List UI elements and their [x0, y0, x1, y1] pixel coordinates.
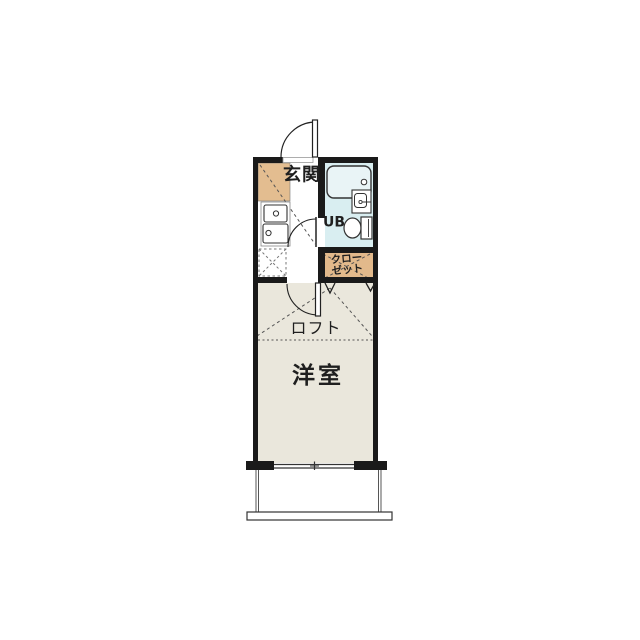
toilet-bowl-icon: [344, 218, 361, 238]
wall-bottom-cap-right: [354, 461, 387, 470]
wall-right: [373, 157, 378, 470]
vanity-faucet-dot: [359, 200, 362, 203]
entrance-label: 玄関: [283, 167, 321, 186]
washer-space: [259, 249, 286, 276]
sink-drain-icon: [266, 230, 271, 235]
wall-room-top-right: [318, 277, 378, 283]
bath-door-icon: [288, 217, 316, 247]
wall-top-right: [318, 157, 378, 163]
wall-room-top-left: [253, 277, 287, 283]
wall-left: [253, 157, 258, 470]
entrance-threshold: [283, 158, 313, 163]
balcony: [247, 470, 392, 520]
bath-door-swing-arc: [288, 219, 316, 247]
closet-label: クロー ゼット: [330, 253, 363, 278]
loft-label: ロフト: [290, 321, 341, 338]
entrance-door-swing-arc: [281, 122, 316, 157]
floor-plan-image: 玄関 UB クロー ゼット ロフト 洋室: [0, 0, 640, 640]
unit-bath-label: UB: [323, 216, 345, 231]
entrance-door-icon: [281, 120, 318, 157]
kitchen-unit: [261, 202, 290, 246]
balcony-edge: [247, 512, 392, 520]
wall-bottom-cap-left: [246, 461, 274, 470]
stove-burner-icon: [273, 211, 278, 216]
room-door-leaf: [316, 283, 321, 316]
entrance-door-leaf: [313, 120, 318, 157]
toilet-tank-icon: [361, 217, 372, 239]
tub-drain-icon: [361, 179, 367, 185]
western-room-label: 洋室: [292, 364, 344, 388]
